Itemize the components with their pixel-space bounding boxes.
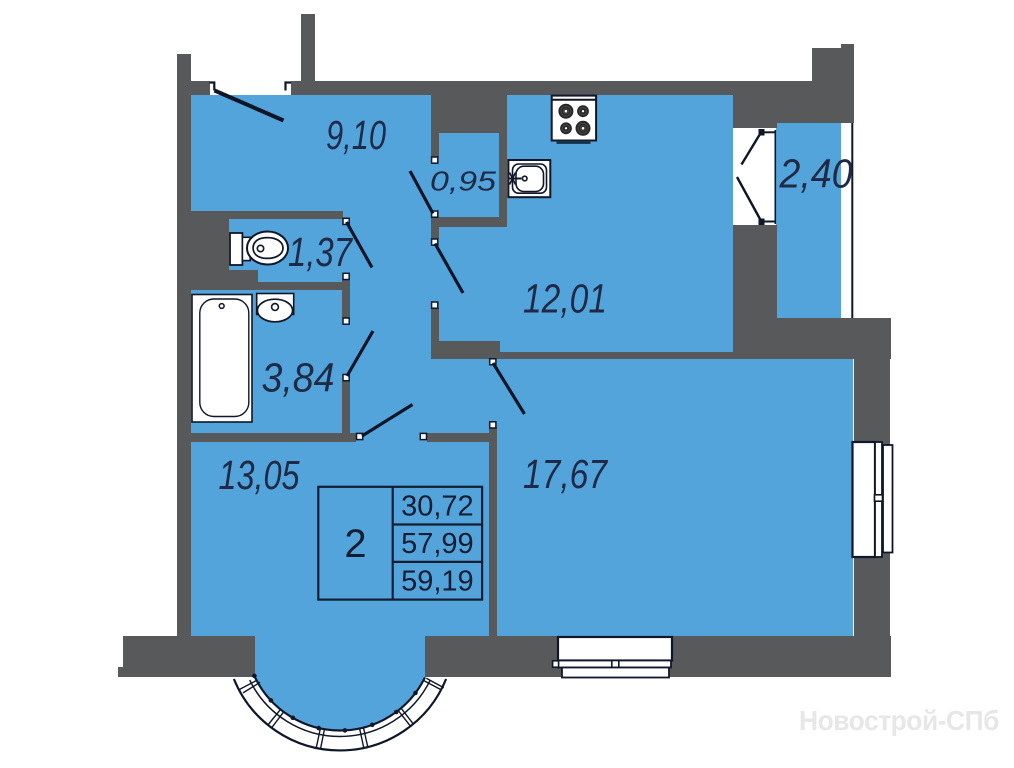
svg-text:13,05: 13,05 (219, 452, 300, 498)
svg-text:59,19: 59,19 (401, 566, 474, 598)
svg-text:12,01: 12,01 (523, 276, 607, 322)
svg-text:Новострой-СПб: Новострой-СПб (799, 705, 999, 736)
svg-text:9,10: 9,10 (326, 112, 386, 158)
svg-text:57,99: 57,99 (401, 528, 474, 560)
svg-text:1,37: 1,37 (288, 229, 354, 275)
svg-text:2,40: 2,40 (779, 151, 853, 197)
svg-text:17,67: 17,67 (523, 451, 609, 497)
svg-text:3,84: 3,84 (262, 355, 335, 401)
svg-text:2: 2 (344, 522, 366, 566)
svg-text:30,72: 30,72 (401, 491, 474, 523)
svg-text:0,95: 0,95 (430, 166, 497, 197)
